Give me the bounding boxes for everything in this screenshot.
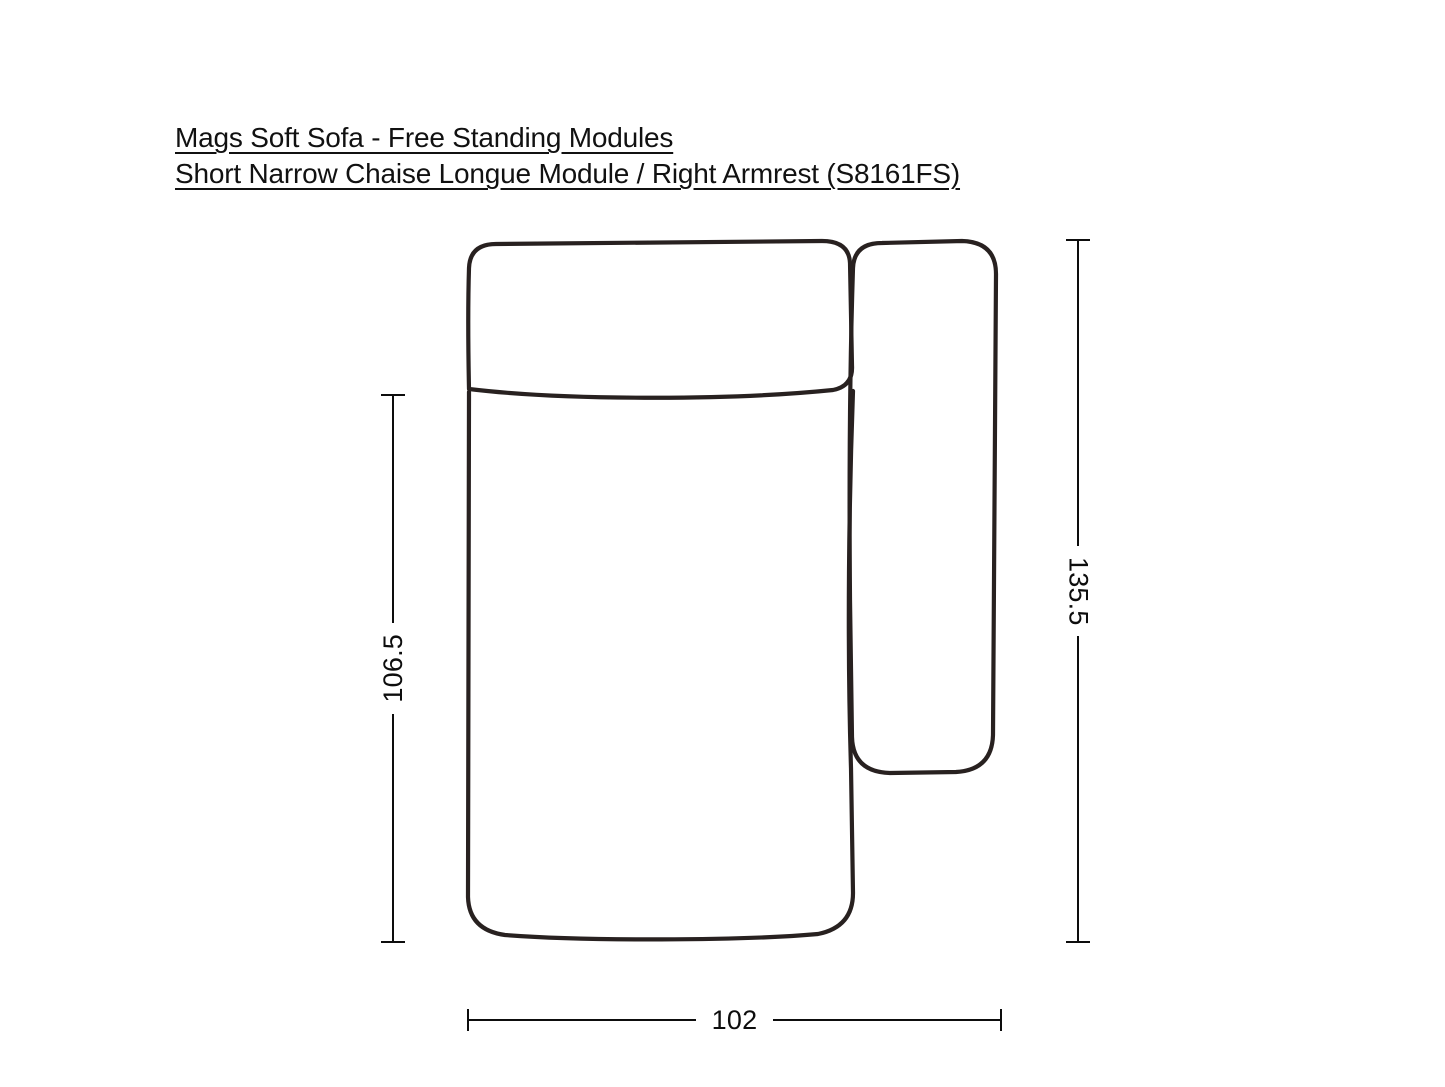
dimension-seat-depth: 106.5 (381, 394, 405, 943)
dimension-tick-bottom (1066, 941, 1090, 943)
sofa-top-view-drawing (0, 0, 1445, 1087)
dimension-line-segment (1077, 241, 1079, 546)
dimension-total-depth: 135.5 (1066, 239, 1090, 943)
dimension-line-segment (469, 1019, 696, 1021)
dimension-line-segment (392, 396, 394, 623)
dimension-label-seat-depth: 106.5 (380, 634, 407, 703)
dimension-line-segment (1077, 636, 1079, 941)
dimension-tick-right (1000, 1009, 1002, 1031)
dimension-label-width: 102 (712, 1007, 758, 1034)
armrest-outline (850, 241, 996, 773)
dimension-line-segment (773, 1019, 1000, 1021)
dimension-width: 102 (467, 1009, 1002, 1031)
seat-outline (468, 391, 853, 939)
dimension-line-segment (392, 714, 394, 941)
dimension-tick-bottom (381, 941, 405, 943)
diagram-canvas: Mags Soft Sofa - Free Standing Modules S… (0, 0, 1445, 1087)
dimension-label-total-depth: 135.5 (1065, 557, 1092, 626)
backrest-outline (468, 241, 852, 398)
